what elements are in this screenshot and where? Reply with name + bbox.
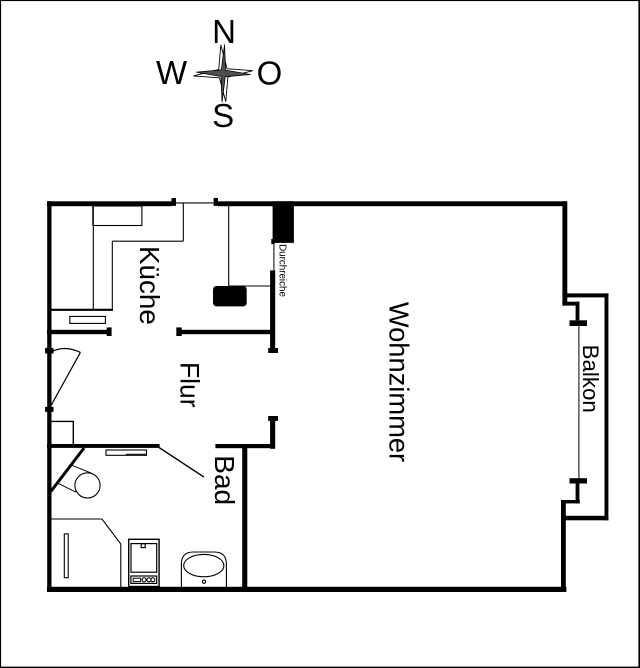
svg-text:W: W (156, 54, 188, 91)
svg-text:Flur: Flur (174, 362, 204, 408)
svg-text:Durchreiche: Durchreiche (276, 244, 287, 297)
svg-text:Wohnzimmer: Wohnzimmer (384, 302, 415, 462)
svg-text:Balkon: Balkon (578, 345, 603, 413)
svg-text:S: S (212, 97, 234, 134)
svg-text:N: N (212, 13, 236, 50)
svg-text:Bad: Bad (209, 455, 240, 505)
svg-text:O: O (257, 54, 283, 91)
svg-text:Küche: Küche (134, 246, 165, 325)
